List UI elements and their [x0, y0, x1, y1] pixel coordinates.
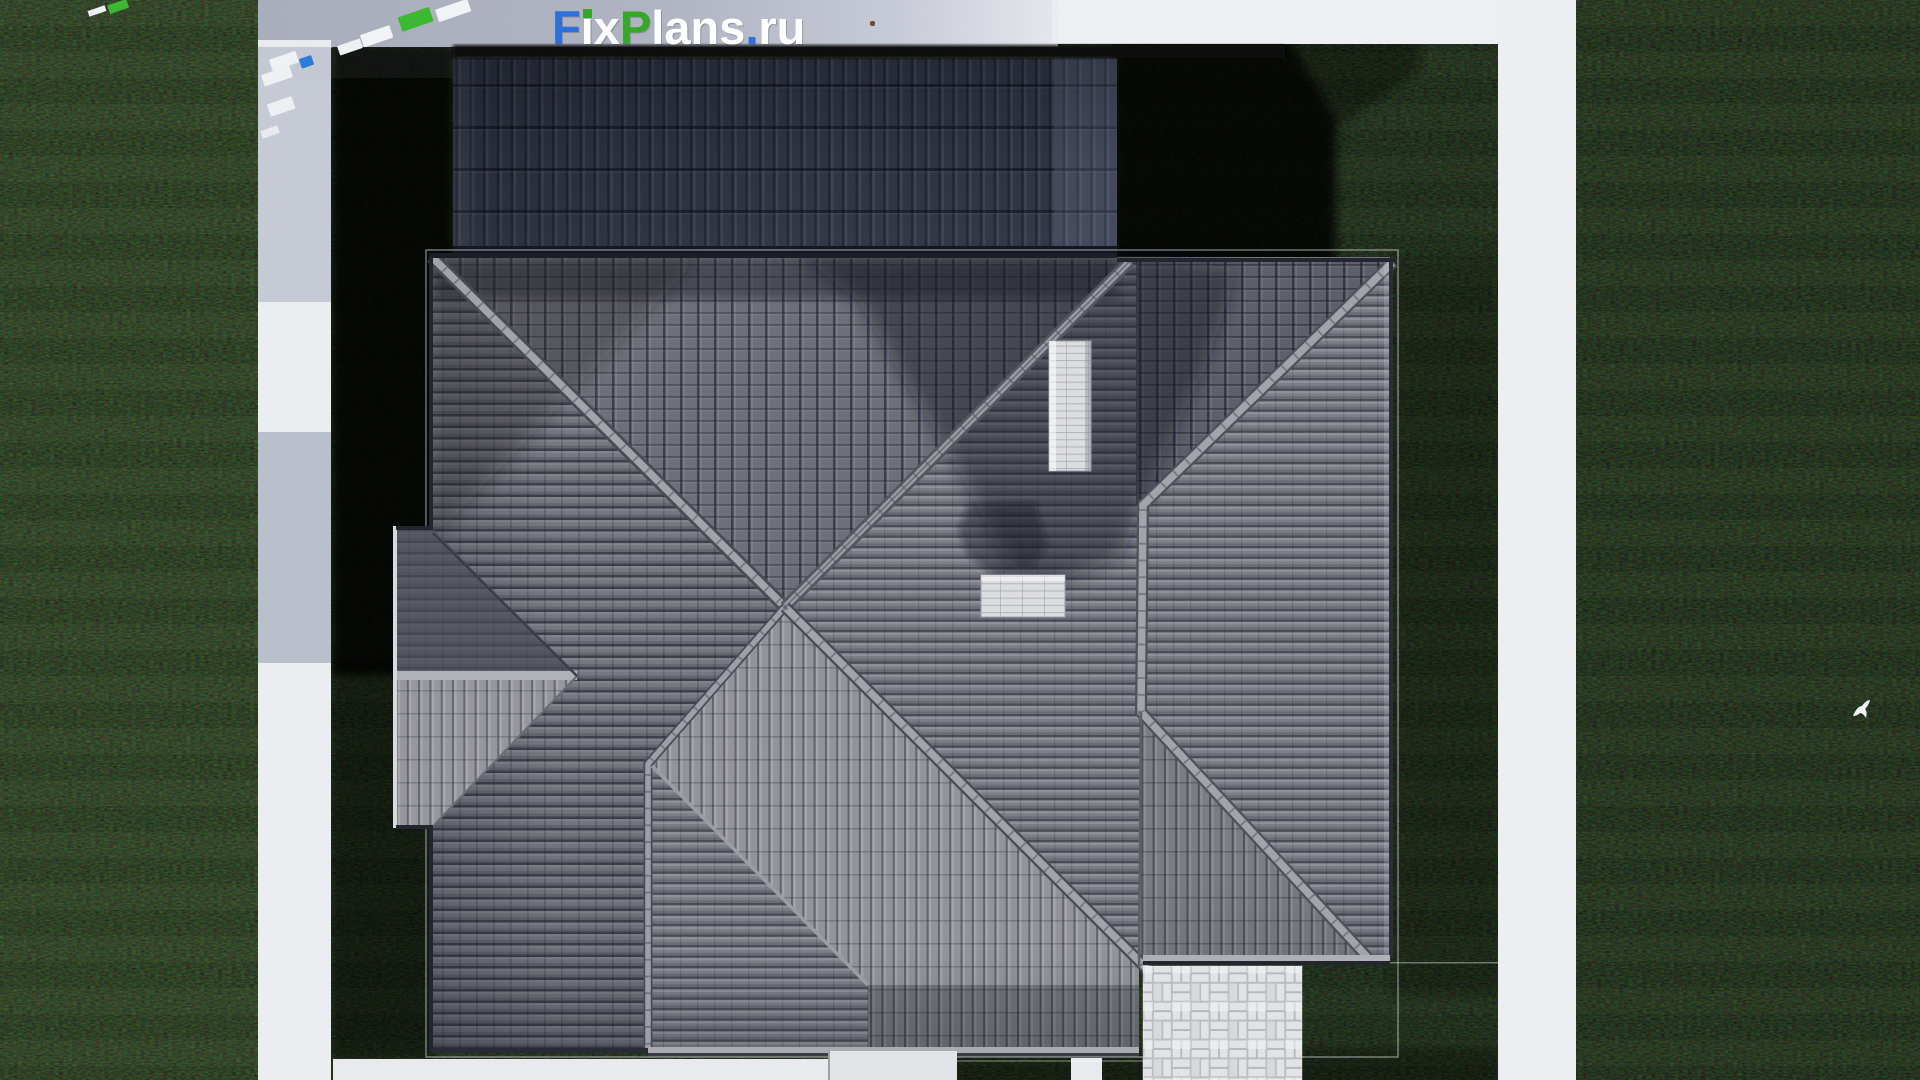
- svg-text:FixPlans.ru: FixPlans.ru: [552, 1, 805, 54]
